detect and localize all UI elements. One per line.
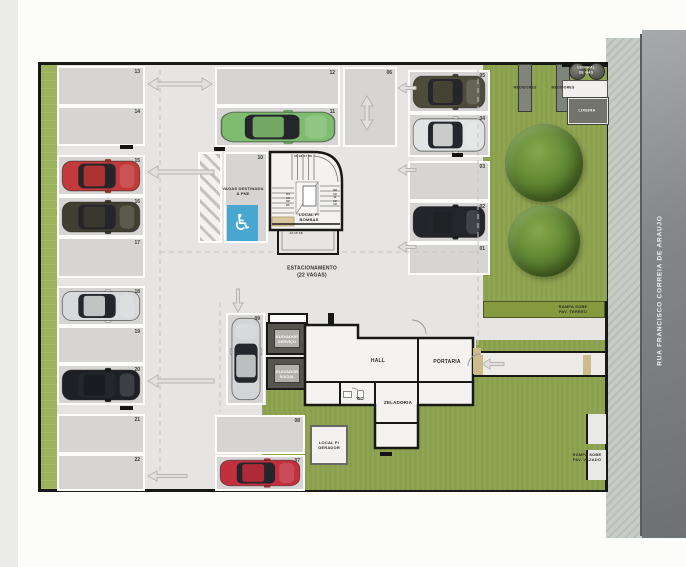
car-top-view — [61, 199, 141, 234]
grass-strip — [476, 340, 605, 351]
parking-space-02: 02 — [408, 201, 490, 243]
local-bombas-label: LOCAL P/ BOMBAS — [299, 212, 319, 222]
parking-space-08: 08 — [215, 415, 305, 454]
space-number: 13 — [134, 69, 140, 75]
left-hedge — [41, 65, 57, 489]
vagas-pne-label: VAGAS DESTINADA A PNE — [220, 186, 266, 196]
car-top-view — [229, 317, 262, 401]
space-number: 08 — [294, 418, 300, 424]
hall-label: HALL — [371, 358, 385, 365]
walkway-sill-right — [583, 355, 591, 375]
ramp-landing-upper — [586, 414, 606, 444]
space-number: 17 — [134, 240, 140, 246]
car-top-view — [412, 204, 486, 240]
gerador-label: LOCAL P/ GERADOR — [318, 440, 340, 450]
car-top-view — [412, 116, 486, 154]
car-top-view — [61, 367, 141, 402]
space-number: 21 — [134, 417, 140, 423]
parking-space-03: 03 — [408, 161, 490, 201]
parking-space-21: 21 — [57, 414, 145, 454]
space-number: 03 — [479, 164, 485, 170]
parked-car — [59, 366, 143, 403]
parked-car — [59, 157, 143, 194]
lixeira-label: LIXEIRA — [578, 107, 595, 112]
parking-space-09: 09 — [226, 313, 265, 405]
estacionamento-label: ESTACIONAMENTO (22 VAGAS) — [287, 266, 337, 279]
no-parking-hatch — [198, 152, 222, 243]
parking-space-17: 17 — [57, 237, 145, 278]
parking-space-13: 13 — [57, 66, 145, 106]
wheelchair-icon: ♿ — [233, 212, 253, 234]
parking-space-16: 16 — [57, 196, 145, 237]
street-name-label: RUA FRANCISCO CORREIA DE ARAUJO — [630, 70, 686, 510]
space-number: 22 — [134, 457, 140, 463]
stair-steps-right-label: 09 10 11 12 13 — [333, 189, 337, 207]
central-gas-label: CENTRAL DE GÁS — [577, 65, 595, 74]
space-number: 06 — [386, 70, 392, 76]
parking-space-22: 22 — [57, 454, 145, 491]
parked-car — [410, 203, 488, 241]
parked-car — [59, 198, 143, 235]
parking-space-06: 06 — [343, 67, 397, 147]
stair-steps-top-label: 05 06 07 08 — [294, 155, 312, 159]
elevator-servico-label: ELEVADOR SERVIÇO — [268, 333, 306, 343]
parked-car — [410, 115, 488, 155]
entry-walkway — [474, 351, 605, 377]
elevator-servico: ELEVADOR SERVIÇO — [266, 322, 308, 355]
parked-car — [228, 315, 263, 403]
tree-1 — [505, 124, 583, 202]
car-top-view — [219, 458, 301, 488]
wc-label: WC — [356, 395, 363, 400]
site-plan-canvas: RUA FRANCISCO CORREIA DE ARAUJO ♿ ELEVAD… — [0, 0, 686, 567]
walkway-sill-left — [475, 355, 483, 375]
accessible-parking-tile: ♿ — [227, 205, 258, 241]
parking-space-15: 15 — [57, 155, 145, 196]
parking-space-01: 01 — [408, 243, 490, 275]
rampa-terreo-label: RAMPA SOBE PAV. TERREO — [559, 304, 588, 314]
space-number: 01 — [479, 246, 485, 252]
page-left-band — [0, 0, 18, 567]
zeladoria-label: ZELADORIA — [384, 400, 412, 406]
elevator-social: ELEVADOR SOCIAL — [266, 357, 308, 390]
parking-space-07: 07 — [215, 455, 305, 491]
parked-car — [410, 72, 488, 111]
car-top-view — [219, 109, 336, 144]
space-number: 12 — [329, 70, 335, 76]
stair-steps-left-label: 04 03 02 01 — [286, 193, 290, 207]
parking-space-20: 20 — [57, 364, 145, 405]
parking-space-05: 05 — [408, 70, 490, 113]
parked-car — [217, 457, 303, 489]
rampa-vazado-label: RAMPA SOBE PAV. VAZADO — [573, 452, 602, 462]
wc-sink — [343, 391, 352, 398]
parking-space-12: 12 — [215, 67, 340, 106]
car-top-view — [412, 73, 486, 110]
portaria-label: PORTARIA — [433, 359, 460, 366]
medidores-label-2: MEDIDORES — [552, 86, 575, 91]
parking-space-18: 18 — [57, 286, 145, 326]
parked-car — [217, 108, 338, 145]
medidores-label-1: MEDIDORES — [514, 86, 537, 91]
space-number: 19 — [134, 329, 140, 335]
parking-space-19: 19 — [57, 326, 145, 364]
parking-space-11: 11 — [215, 106, 340, 147]
stair-steps-bottom-label: 14 15 16 — [289, 232, 302, 236]
parked-car — [59, 288, 143, 324]
tree-2 — [508, 205, 580, 277]
parking-space-14: 14 — [57, 106, 145, 146]
car-top-view — [61, 289, 141, 323]
space-number: 10 — [257, 155, 263, 161]
space-number: 14 — [134, 109, 140, 115]
elevator-social-label: ELEVADOR SOCIAL — [268, 368, 306, 378]
car-top-view — [61, 158, 141, 193]
grass-by-elevators — [266, 390, 308, 412]
parking-space-04: 04 — [408, 113, 490, 157]
